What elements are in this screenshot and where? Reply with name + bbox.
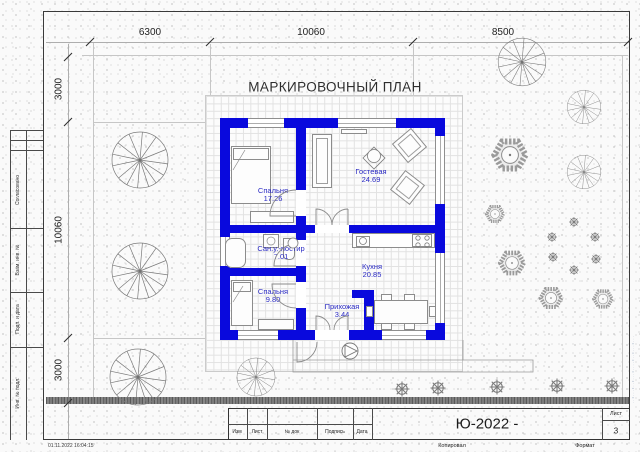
watermark-text: ···•···•··•····•···•··•···•·· [631, 336, 636, 442]
side-label-inv-podl: Инв. № подл. [15, 377, 21, 408]
strip-line [26, 130, 27, 440]
stamp-col-date: Дата [356, 429, 367, 435]
stamp-col-doc: № док [285, 429, 300, 435]
title-block-line [602, 420, 630, 421]
doc-code: Ю-2022 - [456, 416, 519, 433]
side-label-agreed: Согласовано [15, 175, 21, 205]
title-block-line [372, 408, 373, 440]
stamp-col-list: Лист [252, 429, 263, 435]
strip-line [10, 228, 43, 229]
sheet-number: 3 [614, 427, 618, 436]
stamp-col-izm: Изм [232, 429, 241, 435]
sheet-label: Лист [610, 411, 622, 417]
drawing-sheet: МАРКИРОВОЧНЫЙ ПЛАН 6300 10060 8500 3000 … [0, 0, 640, 452]
side-label-vzam-inv: Взам. инв. № [15, 245, 21, 276]
side-label-podp-data: Подп. и дата [15, 304, 21, 333]
strip-line [10, 347, 43, 348]
drawing-frame [43, 11, 630, 440]
stamp-col-sign: Подпись [325, 429, 345, 435]
strip-line [10, 130, 11, 440]
print-timestamp: 01.11.2022 16:04:15 [48, 443, 94, 449]
title-block-line [602, 408, 603, 440]
strip-line [10, 292, 43, 293]
strip-line [10, 150, 43, 151]
copied-label: Копировал [438, 443, 466, 449]
title-block-line [228, 424, 372, 425]
strip-line [10, 140, 43, 141]
format-label: Формат [575, 443, 595, 449]
strip-line [10, 130, 43, 131]
